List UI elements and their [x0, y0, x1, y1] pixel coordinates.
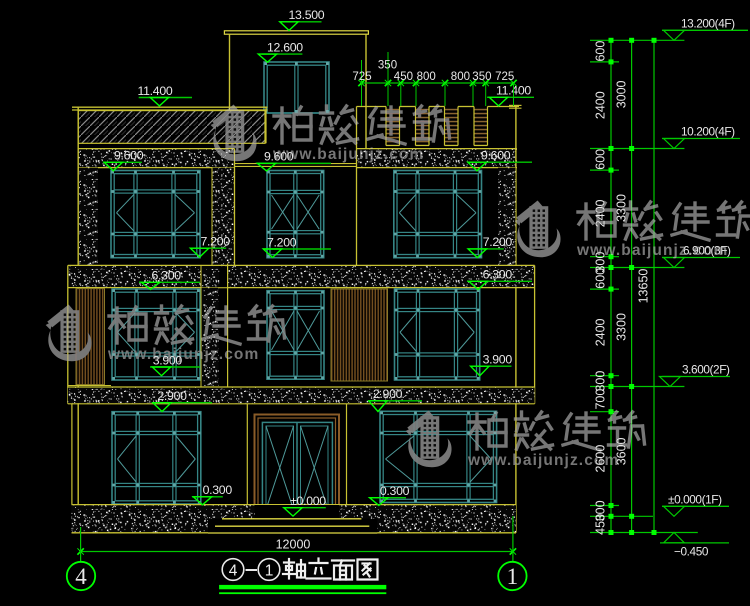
svg-text:1: 1	[507, 564, 519, 589]
svg-text:11.400: 11.400	[138, 84, 173, 98]
svg-text:1: 1	[265, 563, 274, 580]
svg-text:7.200: 7.200	[267, 235, 297, 249]
svg-text:700: 700	[594, 389, 608, 410]
svg-text:13650: 13650	[637, 269, 651, 304]
svg-text:2400: 2400	[594, 91, 608, 119]
svg-text:725: 725	[495, 71, 514, 83]
svg-text:4: 4	[75, 564, 87, 589]
svg-text:600: 600	[594, 268, 608, 289]
svg-text:3.900: 3.900	[483, 353, 513, 367]
svg-text:450: 450	[594, 514, 608, 535]
svg-text:300: 300	[594, 371, 608, 392]
svg-text:7.200: 7.200	[483, 235, 513, 249]
svg-text:600: 600	[594, 149, 608, 170]
svg-text:9.600: 9.600	[481, 148, 511, 162]
svg-text:2.900: 2.900	[157, 389, 187, 403]
svg-text:6.300: 6.300	[152, 269, 182, 283]
svg-text:−0.450: −0.450	[674, 544, 709, 558]
svg-text:350: 350	[378, 60, 397, 72]
svg-text:450: 450	[394, 71, 413, 83]
svg-text:13.500: 13.500	[289, 8, 325, 22]
svg-text:800: 800	[417, 71, 436, 83]
svg-text:350: 350	[472, 71, 491, 83]
svg-text:±0.000(1F): ±0.000(1F)	[668, 492, 722, 506]
svg-text:0.300: 0.300	[380, 484, 410, 498]
svg-text:725: 725	[352, 71, 371, 83]
svg-text:3300: 3300	[615, 313, 629, 341]
svg-text:2.900: 2.900	[373, 387, 403, 401]
svg-text:www.baijunjz.com: www.baijunjz.com	[272, 146, 424, 163]
svg-text:12000: 12000	[276, 538, 311, 552]
svg-text:6.300: 6.300	[483, 268, 513, 282]
svg-text:0.300: 0.300	[203, 483, 233, 497]
svg-text:13.200(4F): 13.200(4F)	[681, 16, 735, 30]
svg-text:600: 600	[594, 41, 608, 62]
svg-text:10.200(4F): 10.200(4F)	[681, 125, 735, 139]
svg-text:9.600: 9.600	[114, 149, 144, 163]
svg-text:3.600(2F): 3.600(2F)	[682, 363, 730, 377]
svg-text:7.200: 7.200	[201, 235, 231, 249]
svg-text:www.baijunjz.com: www.baijunjz.com	[576, 242, 728, 259]
svg-text:3000: 3000	[615, 80, 629, 108]
svg-text:800: 800	[451, 71, 470, 83]
svg-text:2400: 2400	[594, 318, 608, 346]
svg-text:www.baijunjz.com: www.baijunjz.com	[107, 346, 259, 363]
svg-text:±0.000: ±0.000	[290, 494, 326, 508]
svg-text:4: 4	[229, 563, 238, 580]
svg-text:www.baijunjz.com: www.baijunjz.com	[467, 452, 619, 469]
svg-text:12.600: 12.600	[267, 40, 303, 54]
